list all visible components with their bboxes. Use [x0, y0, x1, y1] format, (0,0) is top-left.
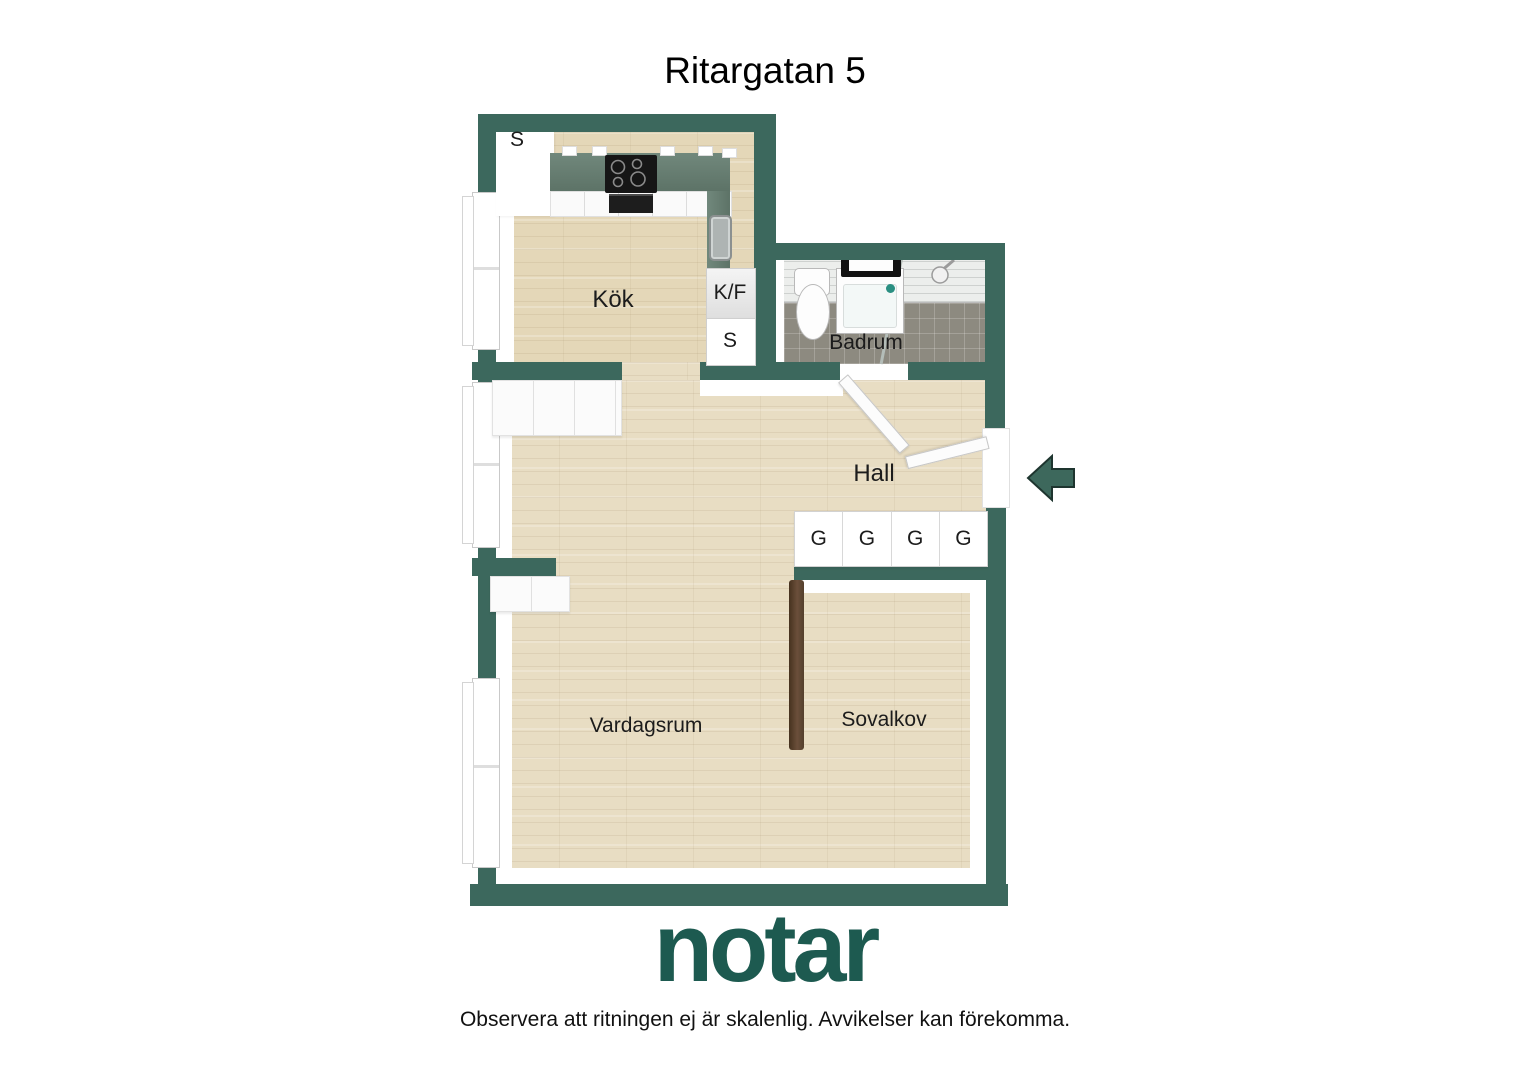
notar-logo: notar	[465, 899, 1065, 996]
living-cabinet-row	[492, 380, 622, 436]
wall-kitchen-bathroom	[754, 114, 776, 362]
disclaimer-text: Observera att ritningen ej är skalenlig.…	[365, 1008, 1165, 1032]
wall-cabinet-tab	[698, 146, 713, 156]
closet-label-kitchen-top: S	[510, 128, 524, 152]
wall-living-stub	[472, 558, 556, 576]
wall-bathroom-bottom-left	[776, 362, 840, 380]
kitchen-doorway-floor	[620, 362, 700, 380]
closet-label-kitchen-side: S	[723, 329, 737, 353]
toilet-bowl	[796, 284, 830, 340]
alcove-right-face	[970, 579, 986, 884]
stove-cooktop-icon	[605, 155, 657, 193]
hall-wardrobe-row: G G G G	[794, 511, 988, 567]
hall-top-face	[700, 380, 843, 396]
window-mullion	[473, 267, 499, 270]
alcove-divider	[789, 580, 804, 750]
wall-cabinet-tab	[562, 146, 577, 156]
wall-right-upper	[985, 243, 1005, 430]
window-mullion	[473, 765, 499, 768]
wall-cabinet-tab	[722, 148, 737, 158]
oven	[609, 194, 653, 213]
wardrobe-label: G	[907, 527, 923, 551]
wardrobe-cell: G	[842, 512, 890, 566]
kitchen-window-sill	[462, 196, 474, 346]
living-window-lower	[472, 678, 500, 868]
room-label-bathroom: Badrum	[829, 331, 903, 355]
wall-left-a	[478, 114, 496, 192]
wall-bathroom-top	[768, 243, 1005, 260]
living-stub-cabinet	[490, 576, 570, 612]
wall-kitchen-living-divider	[472, 362, 622, 380]
kitchen-corner-closet	[496, 132, 554, 216]
wall-cabinet-tab	[660, 146, 675, 156]
wardrobe-label: G	[955, 527, 971, 551]
wall-bathroom-bottom-right	[908, 362, 985, 380]
closet-label-fridge-freezer: K/F	[714, 281, 747, 305]
room-label-kitchen: Kök	[592, 286, 633, 314]
living-window-upper-sill	[462, 386, 474, 544]
page-title: Ritargatan 5	[465, 50, 1065, 92]
vanity-faucet-dot	[886, 284, 895, 293]
wardrobe-cell: G	[891, 512, 939, 566]
window-mullion	[473, 463, 499, 466]
main-floor	[492, 380, 986, 868]
room-label-sleeping-alcove: Sovalkov	[841, 708, 926, 732]
living-window-lower-sill	[462, 682, 474, 864]
wall-right-lower	[986, 504, 1006, 906]
entrance-arrow-icon	[1022, 452, 1078, 504]
room-label-living-room: Vardagsrum	[590, 714, 703, 738]
wardrobe-cell: G	[939, 512, 987, 566]
shower-head-icon	[928, 256, 962, 290]
wardrobe-label: G	[810, 527, 826, 551]
floorplan-page: Ritargatan 5	[0, 0, 1528, 1080]
wardrobe-cell: G	[795, 512, 842, 566]
alcove-top-face	[794, 579, 986, 593]
room-label-hall: Hall	[853, 460, 894, 488]
bottom-face	[492, 868, 986, 884]
kitchen-sink	[709, 215, 732, 261]
wardrobe-label: G	[859, 527, 875, 551]
